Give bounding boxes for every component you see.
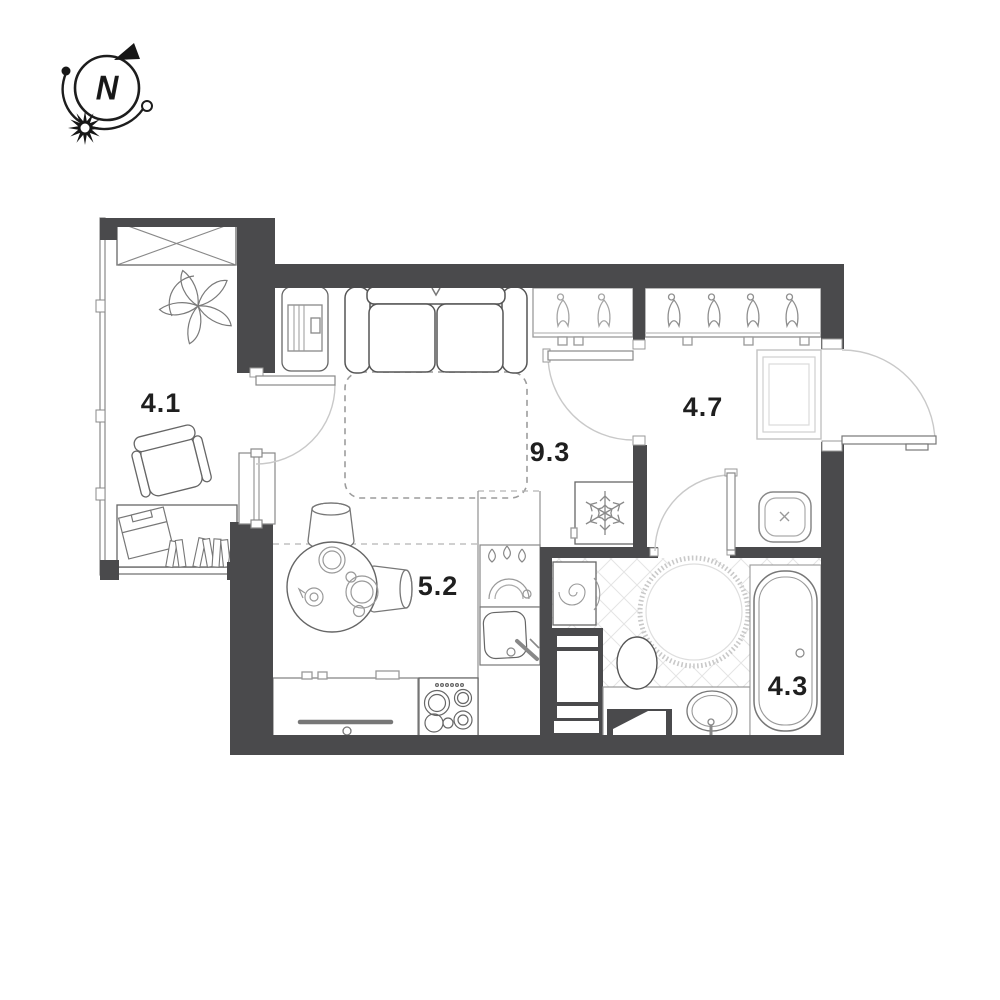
washing-machine [553,562,600,625]
kitchen-sink [480,607,540,665]
floor-plan-page: N [0,0,1000,1000]
window-balcony [239,449,275,528]
compass-dot-filled [62,67,71,76]
compass-north-label: N [96,71,119,107]
shelf-unit [552,628,603,735]
door-balcony [250,368,335,464]
door-bathroom-leaf [727,473,735,550]
stove [419,678,478,737]
label-balcony-area: 4.1 [141,388,182,418]
balcony-glazing-left [100,218,105,575]
fold-out-bed-dashed [345,372,527,498]
wall-stub-wardrobe [633,288,645,341]
label-hallway-area: 4.7 [683,392,724,422]
compass-arrow-icon [114,43,140,60]
wardrobe-living [533,288,633,345]
wall-top-main [275,264,841,288]
toilet [617,637,657,689]
wall-left-lower [230,522,273,735]
door-entrance [842,350,936,450]
wall-bath-top-left [540,547,658,558]
wall-bottom [230,735,844,755]
wall-right-upper [821,264,844,349]
wall-corner-bl [100,560,119,580]
door-entrance-handle [906,444,928,450]
wall-balcony-living [237,218,275,373]
tv-stand [282,287,328,371]
crossed-storage-box [117,222,236,265]
hallway-mirror [757,350,821,439]
wall-mid-vertical [633,445,647,558]
compass: N [62,43,153,145]
label-kitchen-area: 5.2 [418,571,459,601]
wall-corner-tl [100,218,117,240]
floor-plan-canvas: N [0,0,1000,1000]
wall-right-lower [821,558,844,755]
dishwasher [480,545,540,607]
door-living-hall-leaf [548,351,633,360]
bath-mat [607,709,672,737]
refrigerator [571,482,635,544]
utility-shaft [759,492,811,542]
label-living-area: 9.3 [530,437,571,467]
armchair [128,422,213,500]
wall-bath-left [540,547,552,735]
round-rug [640,558,748,666]
room-bathroom [552,558,821,737]
sofa [345,287,527,373]
door-entrance-leaf [842,436,936,444]
compass-dot-open [142,101,152,111]
door-living-hall [543,349,633,440]
wall-balcony-top [100,218,242,227]
label-bathroom-area: 4.3 [768,671,809,701]
plant-icon [159,270,233,345]
wall-right-mid [821,442,844,558]
wardrobe-hallway [645,288,821,345]
door-balcony-leaf [256,376,335,385]
bathtub [750,565,821,737]
door-bathroom [655,469,737,551]
round-dining-table [287,542,377,632]
wall-bath-top-right [730,547,821,558]
